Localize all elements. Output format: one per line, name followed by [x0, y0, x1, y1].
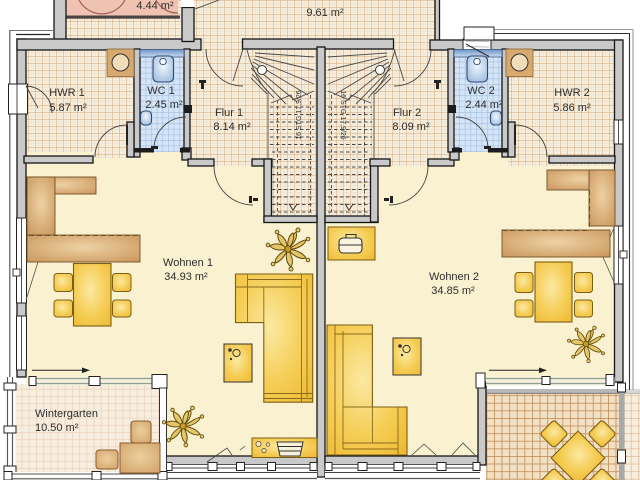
svg-text:10.50 m²: 10.50 m²: [35, 422, 79, 434]
svg-text:WC 1: WC 1: [147, 85, 175, 97]
svg-text:2.44 m²: 2.44 m²: [465, 99, 503, 111]
svg-text:HWR 2: HWR 2: [554, 87, 589, 99]
svg-text:8.14 m²: 8.14 m²: [213, 121, 251, 133]
svg-text:5.86 m²: 5.86 m²: [553, 102, 591, 114]
svg-text:WC 2: WC 2: [467, 85, 495, 97]
svg-text:5.87 m²: 5.87 m²: [49, 102, 87, 114]
svg-text:4.44 m²: 4.44 m²: [136, 0, 174, 12]
svg-text:HWR 1: HWR 1: [49, 87, 84, 99]
svg-text:2.45 m²: 2.45 m²: [145, 99, 183, 111]
svg-text:Flur 1: Flur 1: [215, 107, 243, 119]
svg-text:34.85 m²: 34.85 m²: [431, 285, 475, 297]
svg-text:Wintergarten: Wintergarten: [35, 408, 98, 420]
svg-text:34.93 m²: 34.93 m²: [164, 271, 208, 283]
svg-text:8.09 m²: 8.09 m²: [392, 121, 430, 133]
svg-text:9.61 m²: 9.61 m²: [306, 7, 344, 19]
svg-text:Wohnen 2: Wohnen 2: [429, 271, 479, 283]
svg-text:16 STG 17,9/26: 16 STG 17,9/26: [296, 90, 303, 140]
svg-text:Wohnen 1: Wohnen 1: [163, 257, 213, 269]
svg-text:Flur 2: Flur 2: [393, 107, 421, 119]
svg-text:16 STG 17,9/26: 16 STG 17,9/26: [339, 90, 346, 140]
